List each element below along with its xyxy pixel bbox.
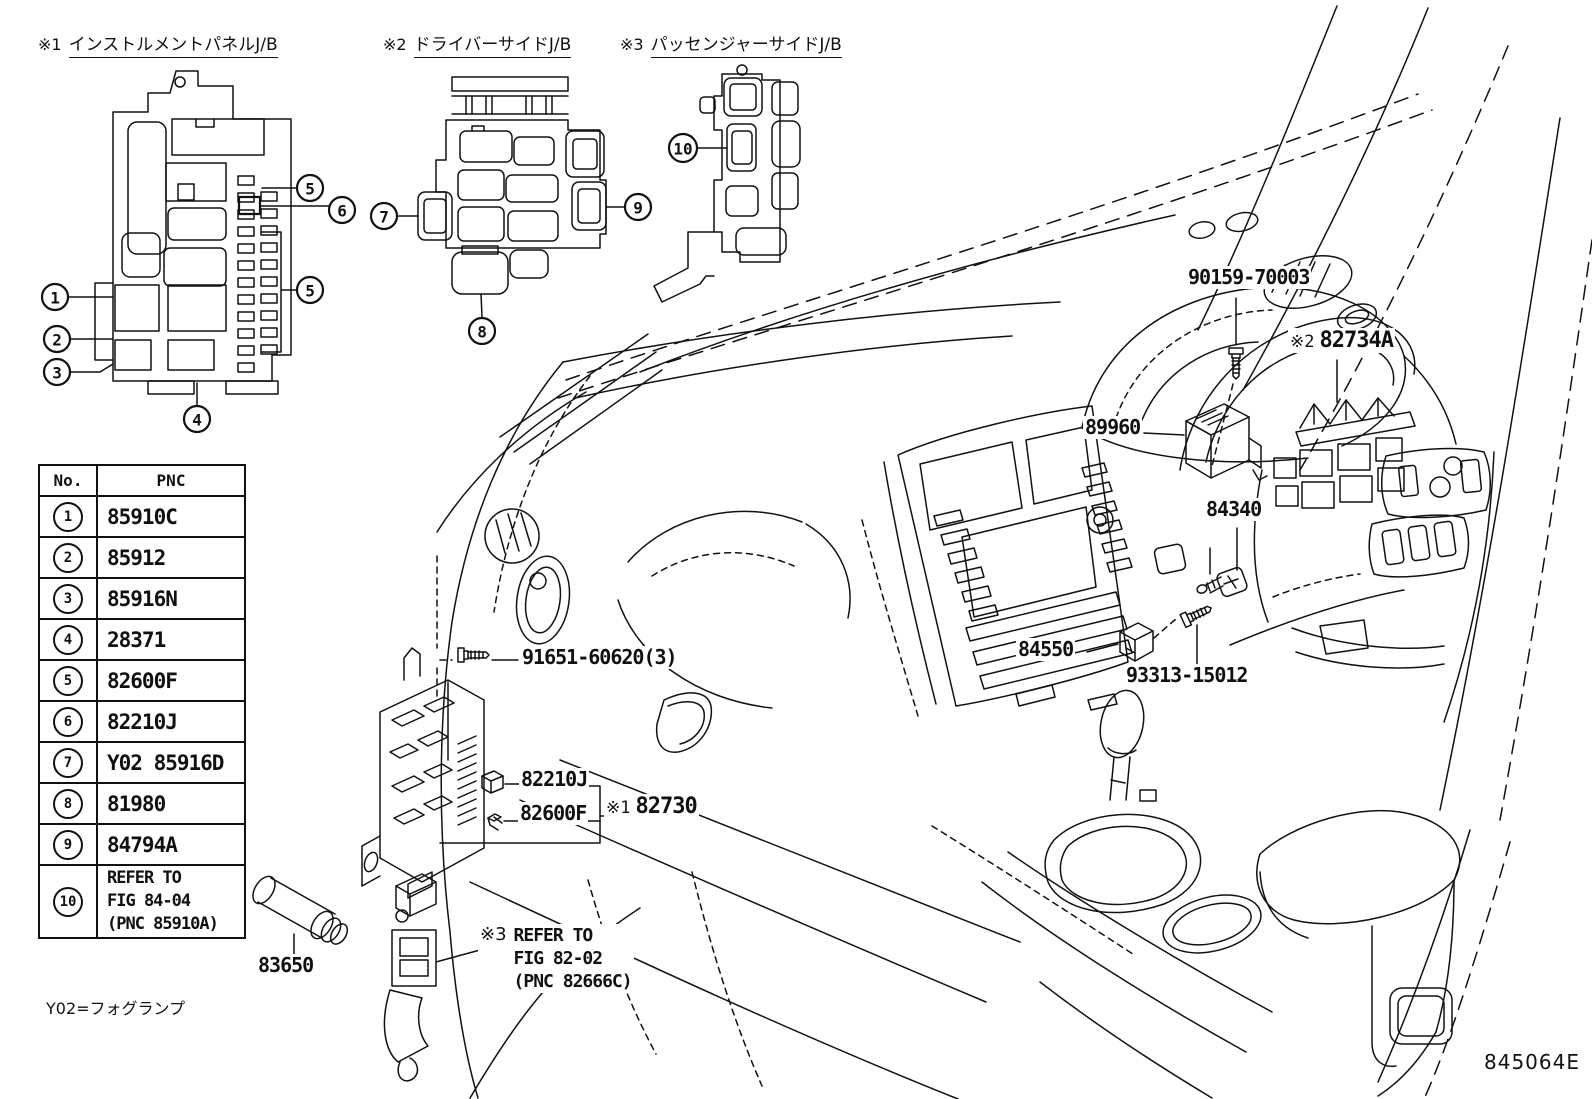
row-5-number: 5 [53, 666, 83, 696]
pnc-table: No. PNC 185910C 285912 385916N 428371 58… [38, 464, 246, 939]
row-7-number: 7 [53, 748, 83, 778]
switch-84340-icon [1196, 528, 1248, 598]
passenger-vents [1254, 356, 1494, 722]
callout-4: 4 [184, 406, 210, 432]
callout-7: 7 [371, 203, 397, 229]
callout-3-number: 3 [52, 364, 62, 383]
row-8-number: 8 [53, 789, 83, 819]
legend-passenger-side-jb: ※3パッセンジャーサイドJ/B [620, 30, 842, 55]
callout-6-number: 6 [337, 202, 347, 221]
row-4-number: 4 [53, 625, 83, 655]
ref-mark-2: ※2 [1290, 332, 1314, 352]
row-9-pnc: 84794A [97, 824, 245, 865]
row-8-pnc: 81980 [97, 783, 245, 824]
callout-6: 6 [329, 197, 355, 223]
callout-5a: 5 [297, 175, 323, 201]
row-6-pnc: 82210J [97, 701, 245, 742]
row-6-number: 6 [53, 707, 83, 737]
driver-side-jb-diagram [398, 77, 624, 317]
row-10-pnc: REFER TO FIG 84-04 (PNC 85910A) [97, 865, 245, 938]
table-row: 428371 [39, 619, 245, 660]
legend-driver-side-jb: ※2ドライバーサイドJ/B [383, 30, 571, 55]
callout-5b: 5 [297, 277, 323, 303]
callout-4-number: 4 [192, 411, 202, 430]
part-number-89960: 89960 [1083, 416, 1142, 439]
clip-82600f-icon [488, 814, 518, 830]
footnote-y02: Y02=フォグランプ [46, 995, 185, 1019]
table-row: 582600F [39, 660, 245, 701]
callout-5b-number: 5 [305, 282, 315, 301]
callout-8-number: 8 [477, 323, 487, 342]
legend-1-title: インストルメントパネルJ/B [69, 35, 278, 58]
screw-90159-icon [1212, 298, 1243, 466]
row-3-number: 3 [53, 584, 83, 614]
callout-8: 8 [469, 318, 495, 344]
row-2-number: 2 [53, 543, 83, 573]
parts-diagram-page: 1 2 3 4 5 5 6 7 8 9 10 ※1インストルメントパネルJ/B … [0, 0, 1592, 1099]
table-row: 185910C [39, 496, 245, 537]
ref-mark-3: ※3 [480, 924, 507, 945]
callout-10-number: 10 [673, 140, 692, 159]
pnc-table-col-no: No. [39, 465, 97, 496]
pnc-table-col-pnc: PNC [97, 465, 245, 496]
part-number-90159-70003: 90159-70003 [1186, 266, 1311, 289]
callout-1: 1 [42, 284, 68, 310]
row-9-number: 9 [53, 830, 83, 860]
detail-parts [248, 298, 1415, 1081]
table-row: 285912 [39, 537, 245, 578]
center-stack [862, 406, 1132, 716]
part-number-91651-60620: 91651-60620(3) [520, 646, 679, 669]
part-number-84340: 84340 [1204, 498, 1263, 521]
part-number-82734a: ※282734A [1288, 328, 1395, 353]
part-number-93313-15012: 93313-15012 [1124, 664, 1249, 687]
key-cylinder [511, 553, 575, 647]
part-number-84550: 84550 [1016, 638, 1075, 661]
callout-10: 10 [669, 134, 697, 162]
instrument-panel-jb-diagram [68, 71, 329, 405]
legend-3-mark: ※3 [620, 35, 644, 54]
row-1-number: 1 [53, 502, 83, 532]
legend-3-title: パッセンジャーサイドJ/B [651, 35, 842, 58]
part-number-82600f: 82600F [518, 802, 588, 825]
figure-code: 845064E [1484, 1050, 1580, 1074]
screw-93313-icon [1180, 602, 1214, 666]
row-3-pnc: 85916N [97, 578, 245, 619]
part-number-83650: 83650 [256, 954, 315, 977]
side-vent [485, 509, 539, 563]
screw-91651-icon [437, 556, 518, 700]
callout-3: 3 [44, 359, 70, 385]
resistor-83650-icon [248, 873, 350, 956]
callout-5a-number: 5 [305, 180, 315, 199]
legend-instrument-panel-jb: ※1インストルメントパネルJ/B [38, 30, 278, 55]
row-7-pnc: Y02 85916D [97, 742, 245, 783]
refer-note: ※3 REFER TO FIG 82-02 (PNC 82666C) [478, 924, 634, 993]
callout-2: 2 [44, 326, 70, 352]
box-84550-icon [1087, 618, 1177, 661]
row-1-pnc: 85910C [97, 496, 245, 537]
callout-circles: 1 2 3 4 5 5 6 7 8 9 10 [42, 134, 697, 432]
row-10-number: 10 [53, 887, 83, 917]
part-number-82210j: 82210J [519, 768, 589, 791]
table-row: 7Y02 85916D [39, 742, 245, 783]
table-row: 385916N [39, 578, 245, 619]
legend-1-mark: ※1 [38, 35, 62, 54]
callout-2-number: 2 [52, 331, 62, 350]
refer-note-text: REFER TO FIG 82-02 (PNC 82666C) [514, 924, 632, 993]
legend-2-title: ドライバーサイドJ/B [414, 35, 572, 58]
table-row: 10REFER TO FIG 84-04 (PNC 85910A) [39, 865, 245, 938]
row-2-pnc: 85912 [97, 537, 245, 578]
callout-7-number: 7 [379, 208, 389, 227]
part-number-82730-value: 82730 [635, 794, 696, 819]
pnc-table-header-row: No. PNC [39, 465, 245, 496]
table-row: 881980 [39, 783, 245, 824]
callout-1-number: 1 [50, 289, 60, 308]
passenger-side-jb-diagram [654, 65, 800, 302]
ref-mark-1: ※1 [606, 798, 630, 818]
callout-9-number: 9 [633, 199, 643, 218]
part-number-82730: ※182730 [604, 794, 699, 819]
legend-2-mark: ※2 [383, 35, 407, 54]
table-row: 984794A [39, 824, 245, 865]
jb-82730-icon [362, 648, 484, 898]
table-row: 682210J [39, 701, 245, 742]
row-5-pnc: 82600F [97, 660, 245, 701]
ecu-89960-icon [1144, 404, 1267, 480]
relay-82210j-icon [482, 771, 519, 793]
callout-9: 9 [625, 194, 651, 220]
part-number-82734a-value: 82734A [1319, 328, 1392, 353]
row-4-pnc: 28371 [97, 619, 245, 660]
